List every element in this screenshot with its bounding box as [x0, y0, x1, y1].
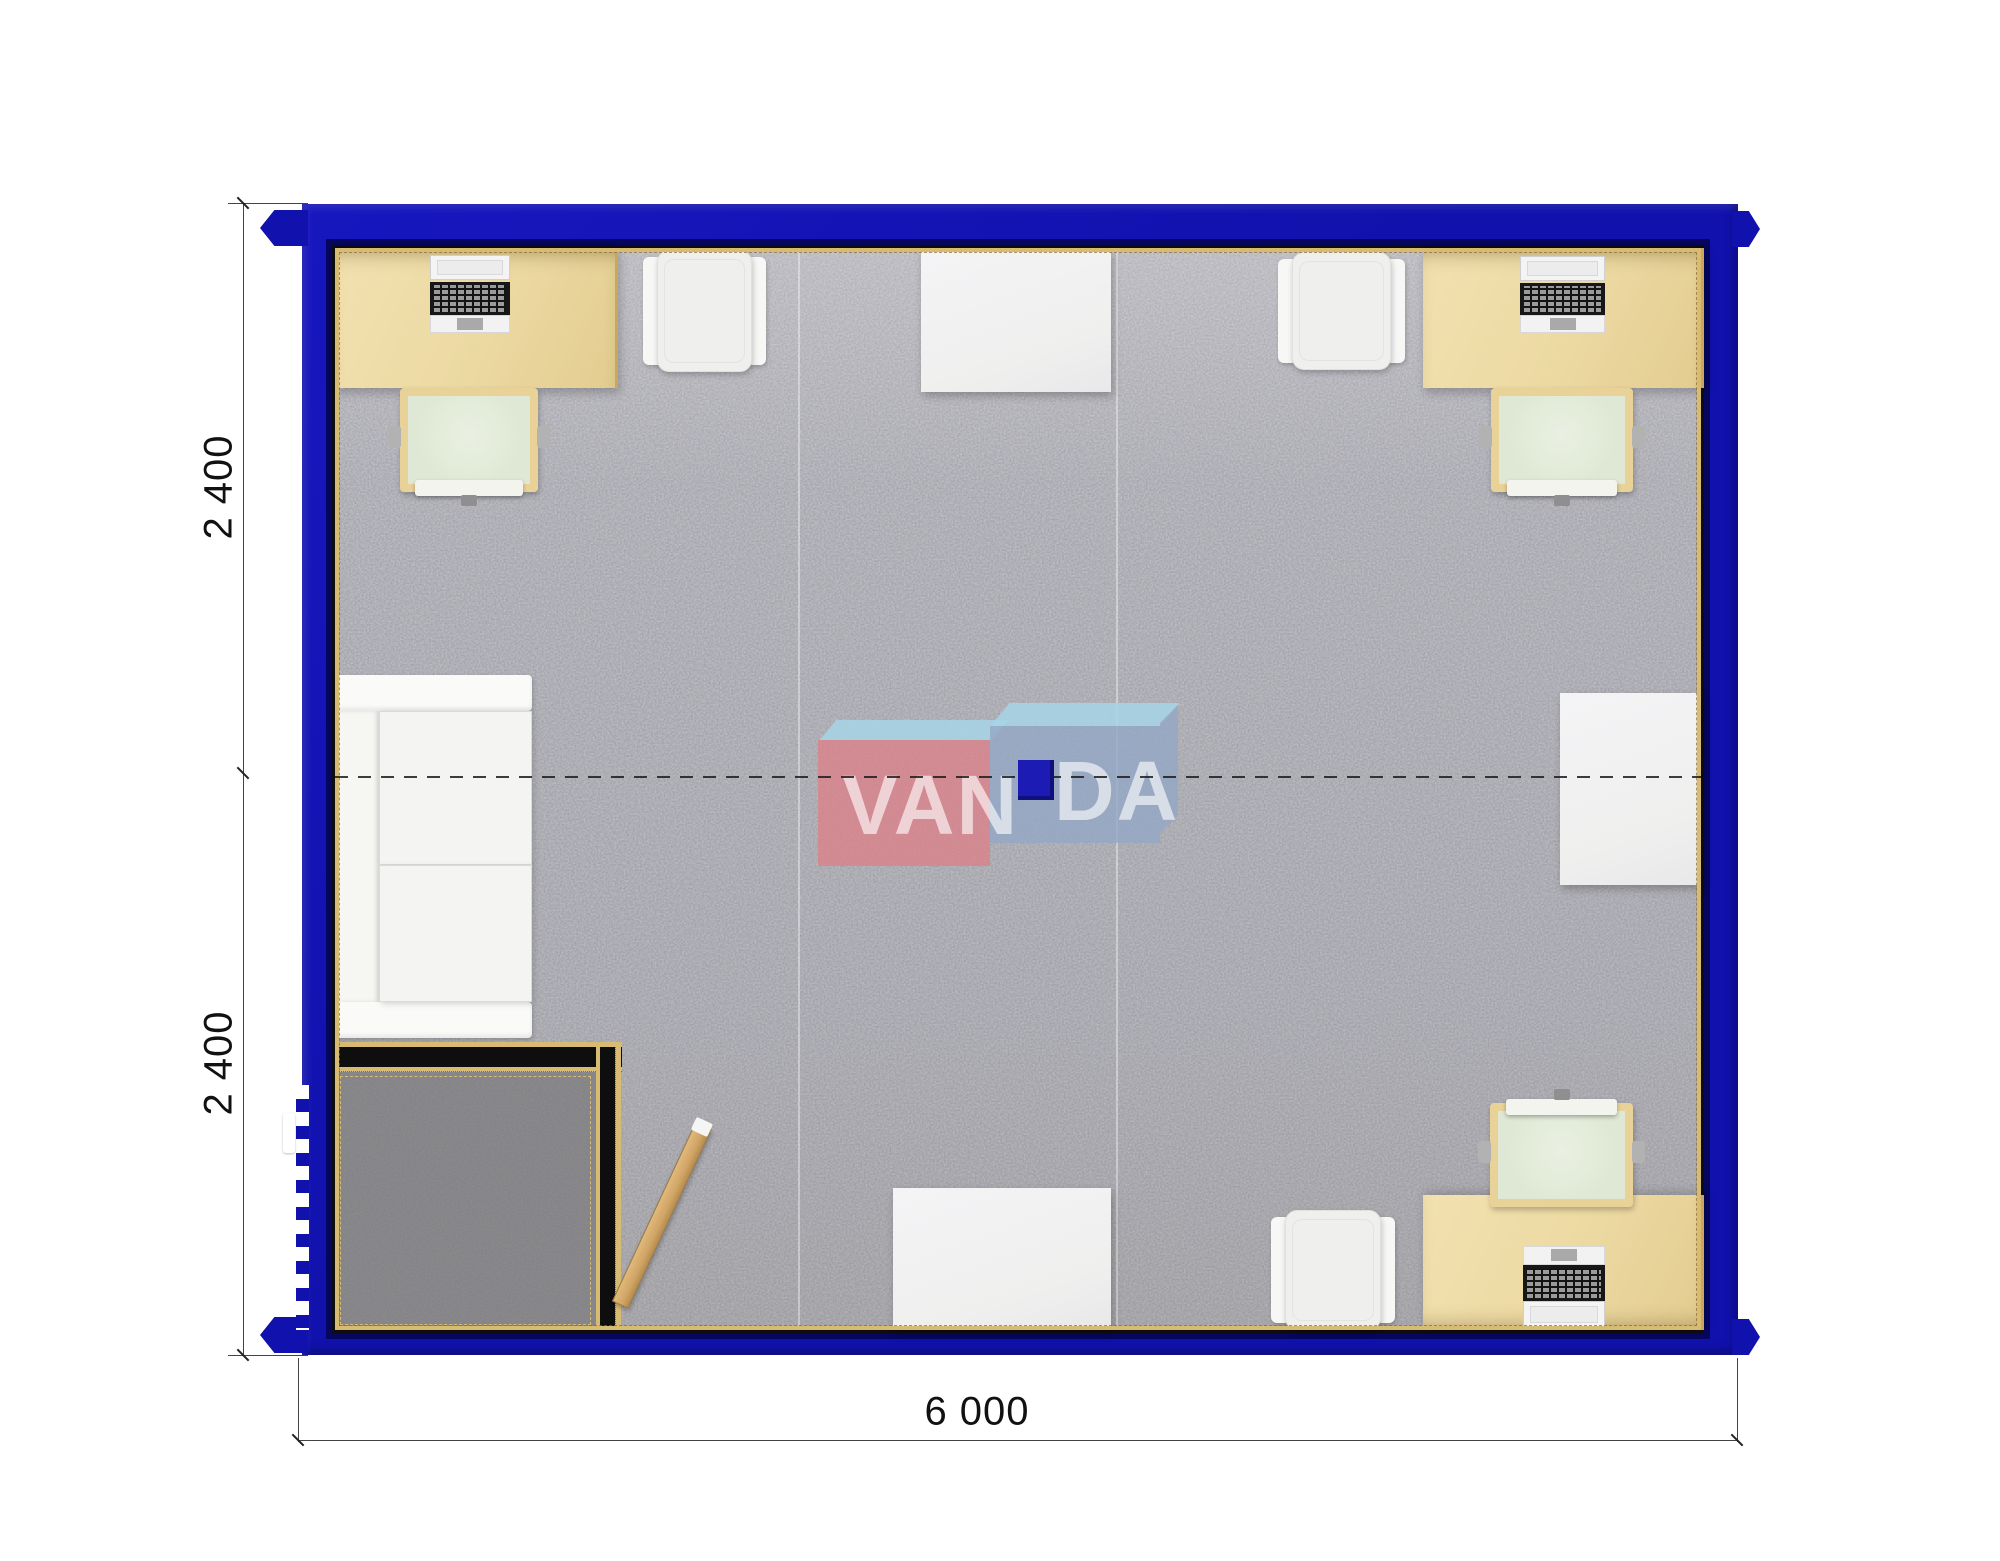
laptop-lid [1520, 256, 1605, 281]
armchair-bottom-right [1271, 1210, 1395, 1330]
exterior-door-handle [283, 1113, 295, 1153]
meeting-table-top-center [921, 250, 1111, 392]
chair-backrest [1506, 1099, 1618, 1115]
sofa-cushion [379, 711, 532, 865]
dimension-extension-top [228, 203, 308, 204]
corner-casting-top-left [260, 210, 308, 246]
logo-box-top-face [990, 703, 1179, 726]
chair-caster [461, 495, 477, 506]
mat-stitch-border [340, 1076, 591, 1325]
laptop-top-right [1520, 256, 1605, 333]
laptop-lid [430, 255, 510, 280]
sofa-cushion [379, 865, 532, 1002]
office-chair-top-right [1491, 388, 1633, 492]
floor-plan-canvas: VAN DA 2 400 2 400 6 000 [0, 0, 2000, 1561]
chair-armrest [1632, 426, 1645, 448]
laptop-palmrest [430, 315, 510, 333]
sofa-armrest [335, 675, 532, 711]
floor-panel-seam [798, 248, 800, 1330]
laptop-top-left [430, 255, 510, 333]
table-right-wall [1560, 693, 1701, 885]
center-connector-block [1018, 760, 1054, 800]
logo-box-top-face [820, 720, 1009, 740]
chair-backrest [415, 480, 522, 496]
sofa-backrest [335, 711, 379, 1002]
chair-caster [1554, 1089, 1570, 1100]
armchair-top-left [643, 250, 766, 372]
laptop-bottom-right [1523, 1246, 1605, 1330]
armchair-seat [1292, 252, 1391, 370]
entrance-mat [335, 1071, 596, 1330]
building-outline: VAN DA [302, 204, 1738, 1355]
dimension-line-left [243, 203, 244, 1356]
chair-armrest [1478, 1141, 1491, 1163]
corner-casting-bottom-right [1732, 1319, 1760, 1355]
laptop-palmrest [1523, 1246, 1605, 1265]
exterior-door-marking [296, 1085, 309, 1330]
dimension-label-left-top: 2 400 [197, 434, 242, 539]
armchair-seat [657, 250, 752, 372]
chair-armrest [537, 426, 550, 448]
vestibule-wall-top [335, 1042, 622, 1072]
vanda-logo-watermark: VAN DA [818, 703, 1184, 871]
chair-armrest [388, 426, 401, 448]
laptop-palmrest [1520, 315, 1605, 333]
sofa-armrest [335, 1002, 532, 1038]
laptop-lid [1523, 1301, 1605, 1328]
laptop-keyboard [1523, 1265, 1605, 1301]
dimension-line-bottom [298, 1440, 1738, 1441]
chair-backrest [1507, 480, 1618, 496]
laptop-keyboard [430, 282, 510, 315]
chair-caster [1554, 495, 1570, 506]
office-chair-bottom-right [1490, 1103, 1633, 1207]
dimension-label-bottom: 6 000 [924, 1390, 1029, 1435]
chair-armrest [1632, 1141, 1645, 1163]
meeting-table-bottom-center [893, 1188, 1111, 1330]
chair-armrest [1479, 426, 1492, 448]
sofa [335, 675, 532, 1038]
room-interior: VAN DA [332, 245, 1704, 1333]
armchair-top-right [1278, 252, 1405, 370]
logo-text-da: DA [1054, 749, 1179, 833]
armchair-seat [1285, 1210, 1381, 1330]
laptop-keyboard [1520, 283, 1605, 316]
dimension-extension-left [298, 1358, 299, 1442]
dimension-label-left-bottom: 2 400 [197, 1010, 242, 1115]
dimension-extension-bottom [228, 1355, 308, 1356]
dimension-extension-right [1737, 1358, 1738, 1442]
office-chair-top-left [400, 388, 538, 492]
corner-casting-top-right [1732, 211, 1760, 247]
